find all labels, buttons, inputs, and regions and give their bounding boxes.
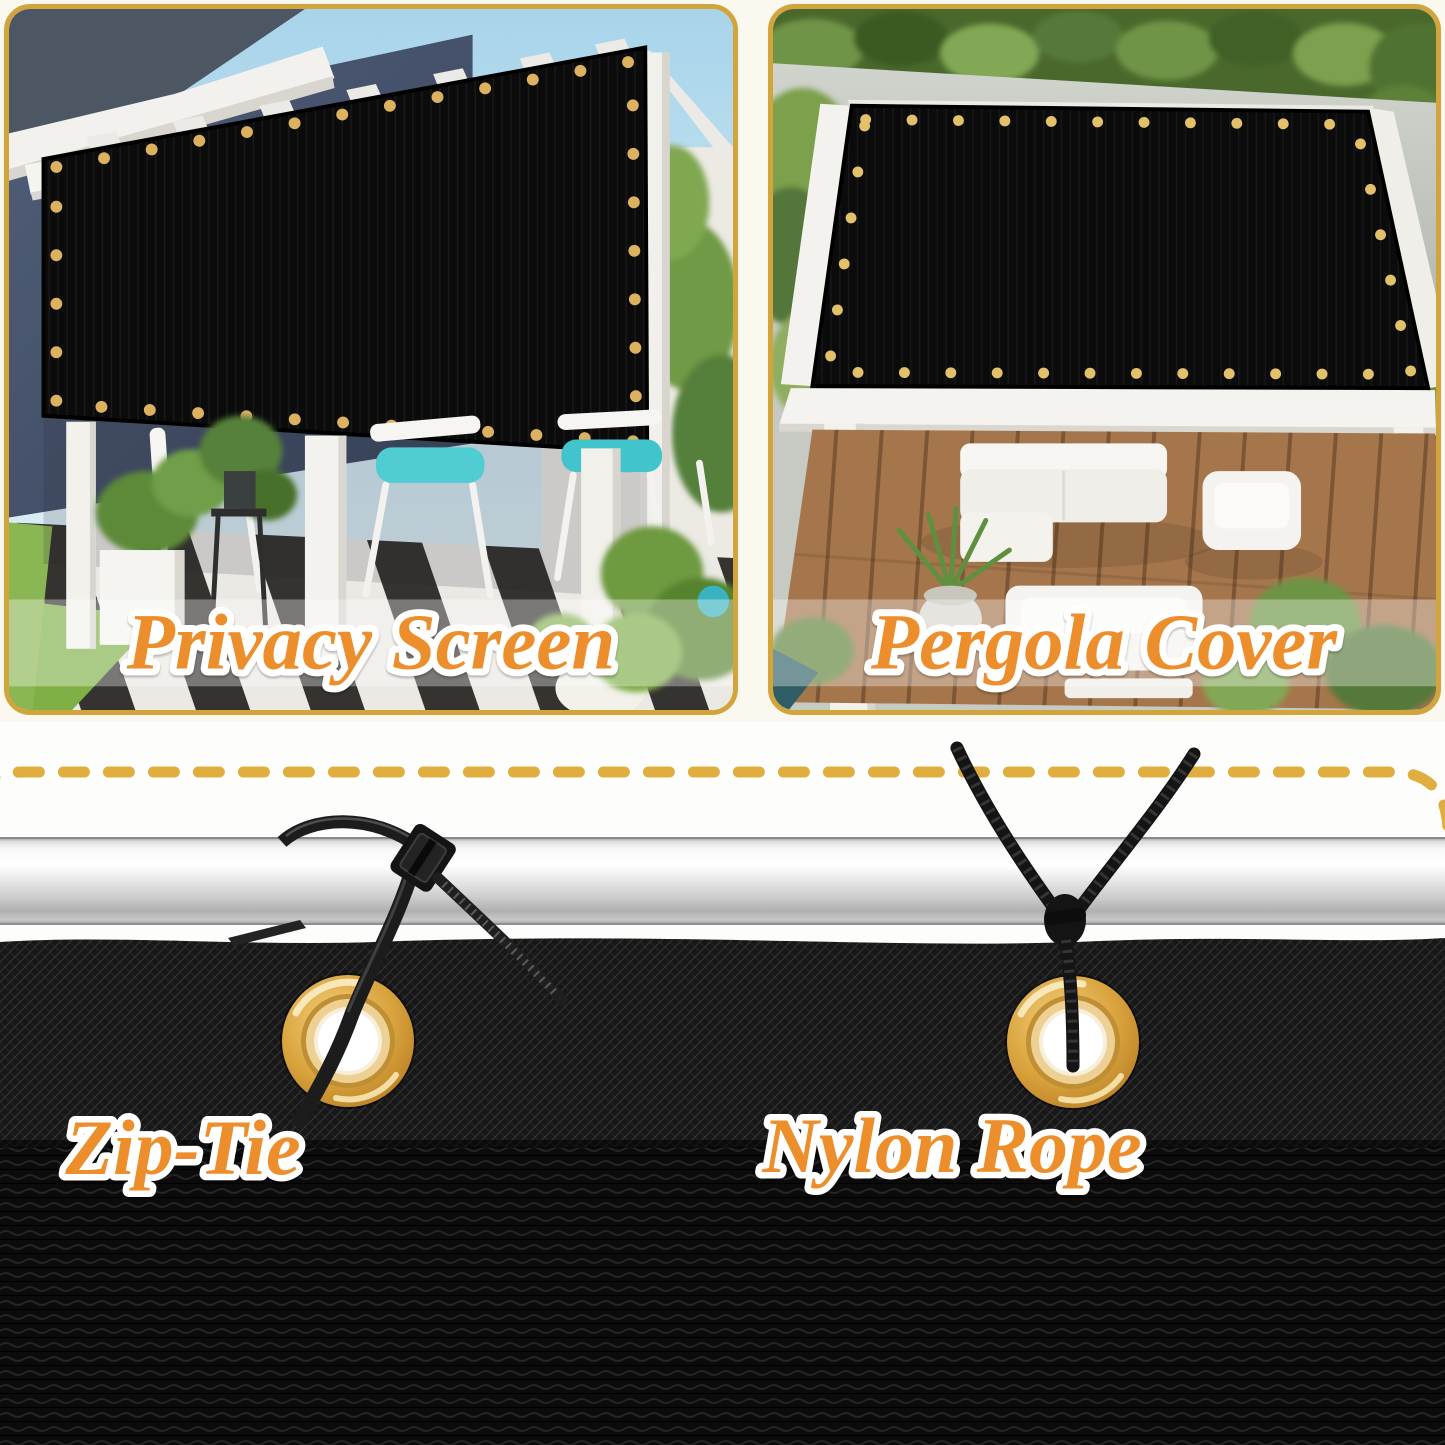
product-collage: Privacy Screen (0, 0, 1445, 1445)
panel-privacy-screen: Privacy Screen (4, 4, 738, 715)
nylon-rope-label: Nylon Rope (761, 1102, 1141, 1189)
pergola-shade-cover (812, 106, 1428, 388)
pergola-cover-label: Pergola Cover (870, 599, 1338, 686)
installation-closeup: Zip-Tie Nylon Rope (0, 722, 1445, 1445)
installation-section: Zip-Tie Nylon Rope (0, 722, 1445, 1445)
zip-tie-label: Zip-Tie (64, 1104, 300, 1191)
pergola-cover-photo: Pergola Cover (773, 9, 1436, 710)
panel-pergola-cover: Pergola Cover (768, 4, 1441, 715)
shade-mesh-fabric (0, 938, 1445, 1445)
mounting-pole (0, 837, 1445, 925)
privacy-screen-photo: Privacy Screen (9, 9, 733, 710)
privacy-screen-label: Privacy Screen (126, 599, 616, 686)
